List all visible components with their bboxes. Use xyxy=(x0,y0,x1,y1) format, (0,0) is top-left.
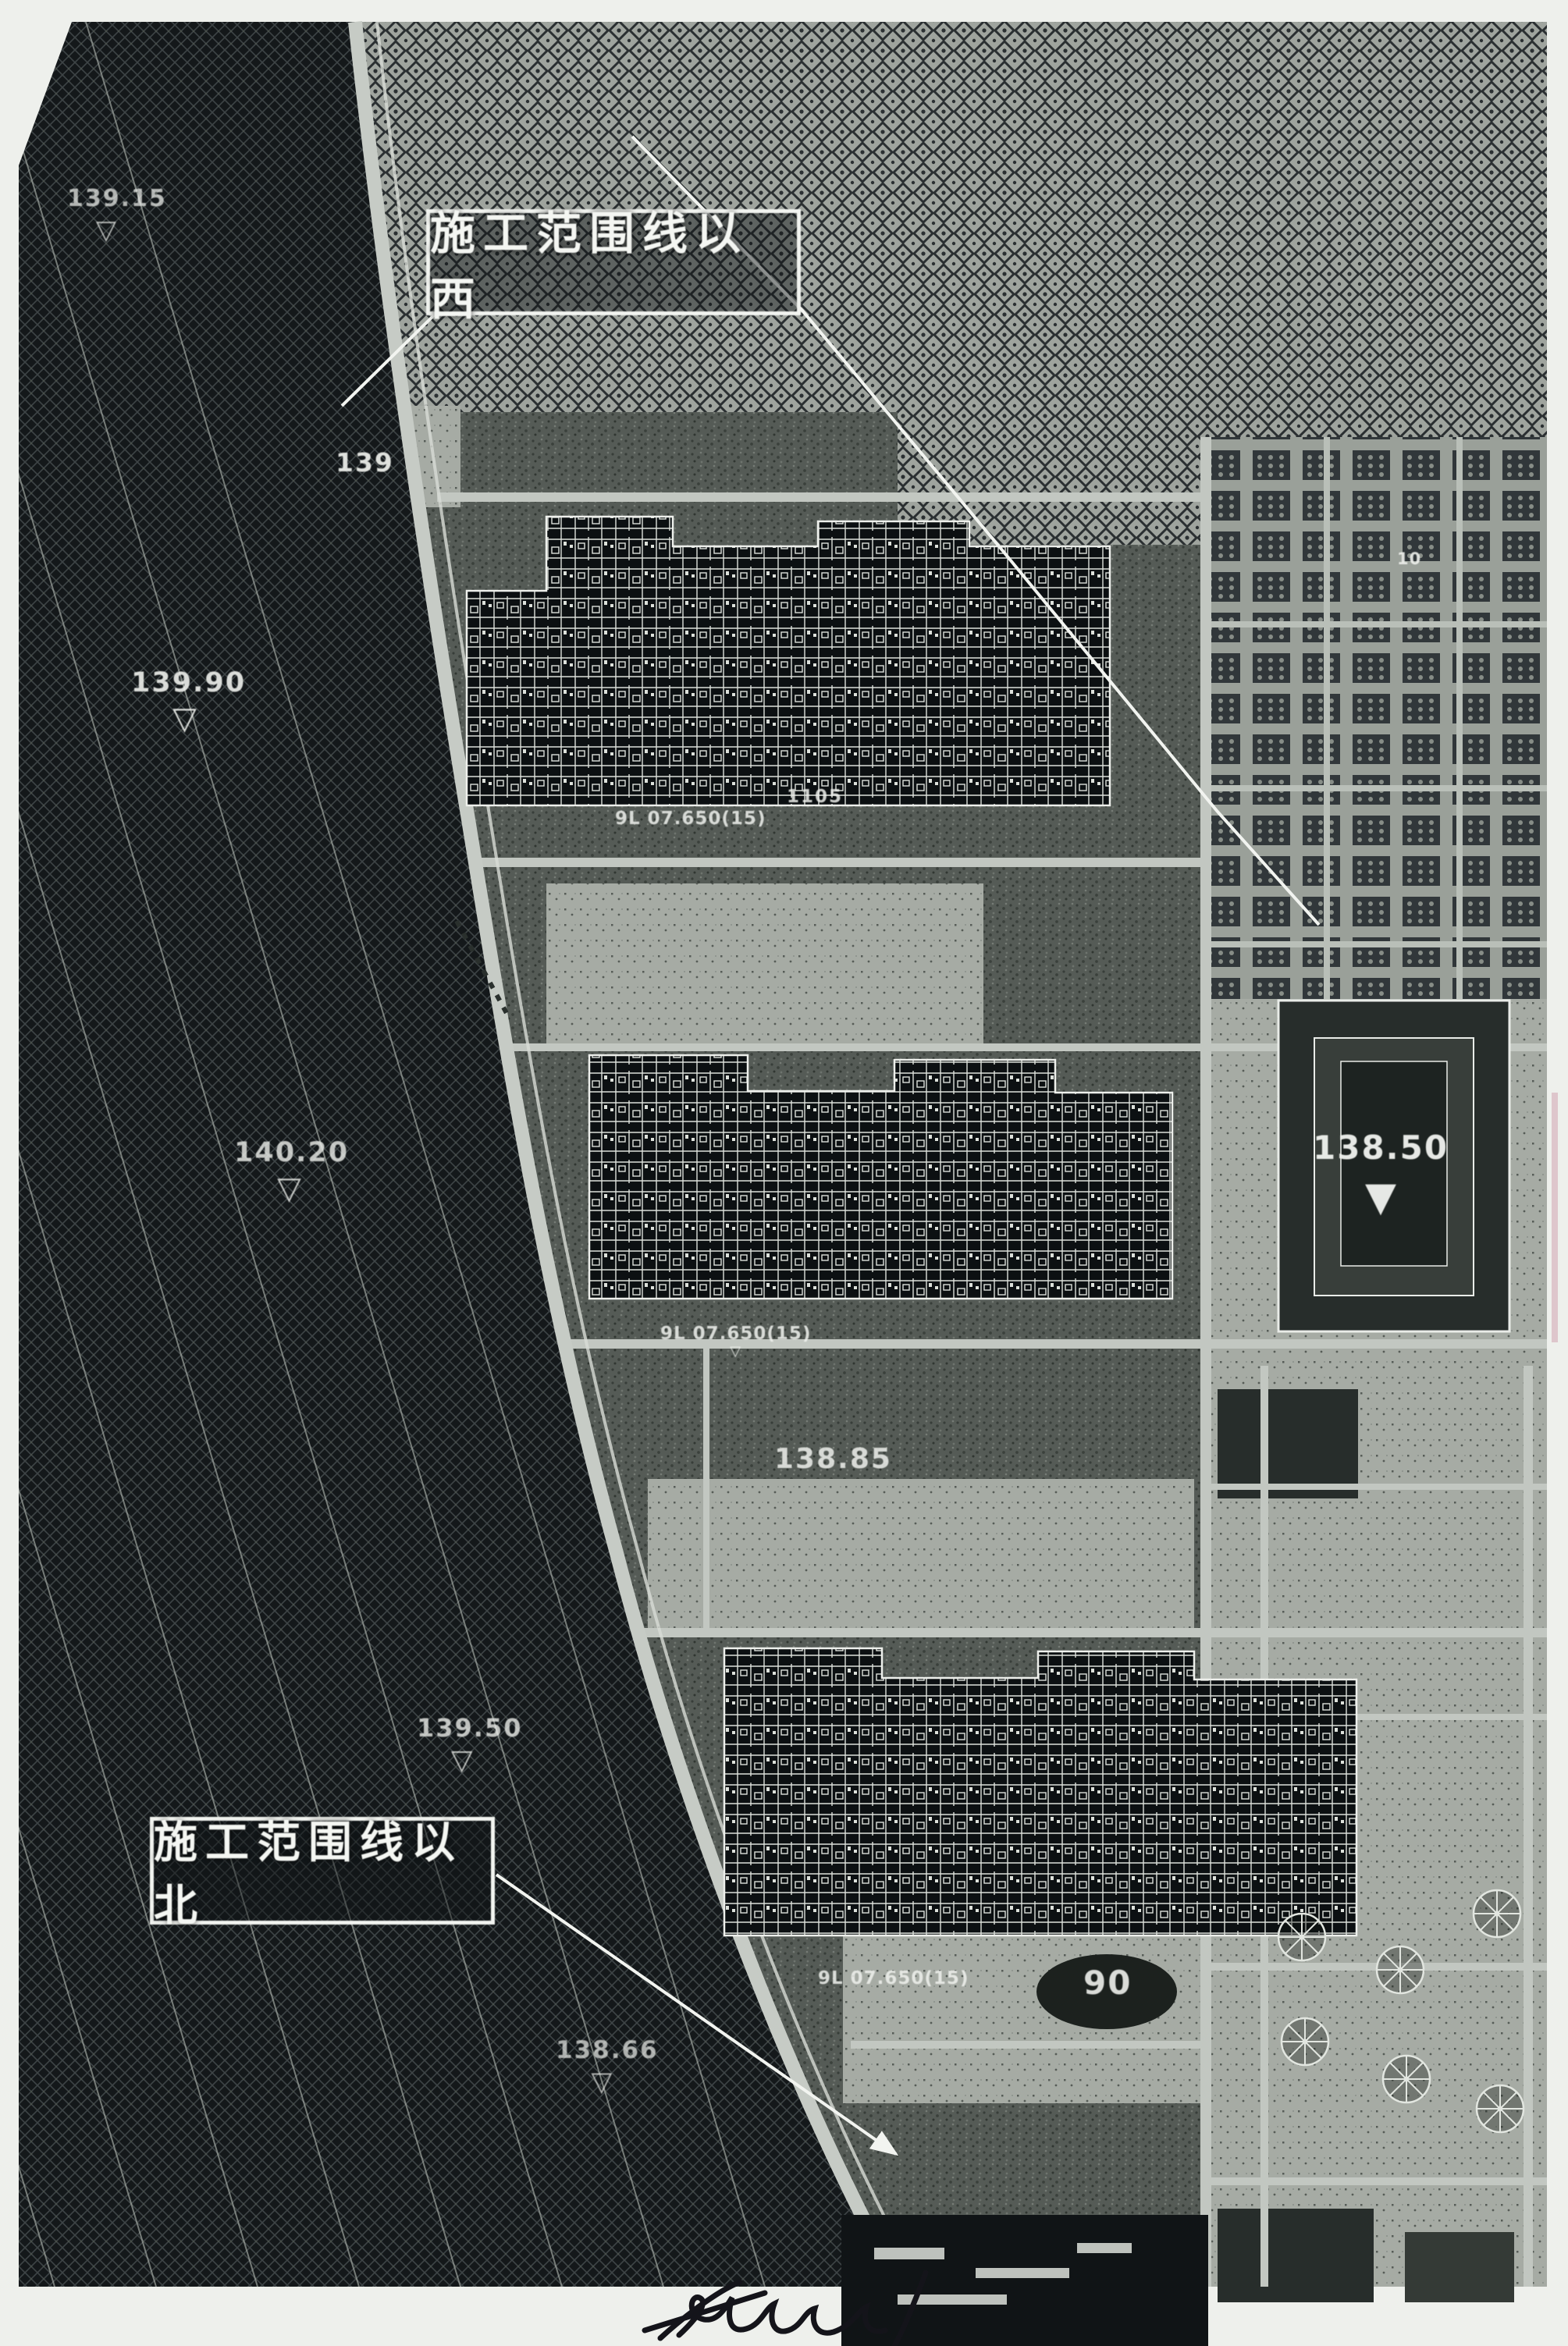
bottom-annotation-block xyxy=(841,2215,1208,2346)
building-c-footprint xyxy=(724,1648,1356,1935)
courtyard-building xyxy=(1278,1001,1509,1331)
scan-artifact-pink xyxy=(1552,1093,1558,1342)
site-plan-drawing xyxy=(0,0,1568,2346)
city-block-grid xyxy=(1202,437,1547,999)
building-b-footprint xyxy=(589,1055,1172,1299)
scanned-site-plan-page: 施工范围线以西 施工范围线以北 139.15 ▽ 139.90 ▽ 139 14… xyxy=(0,0,1568,2346)
building-a-footprint xyxy=(467,517,1110,805)
